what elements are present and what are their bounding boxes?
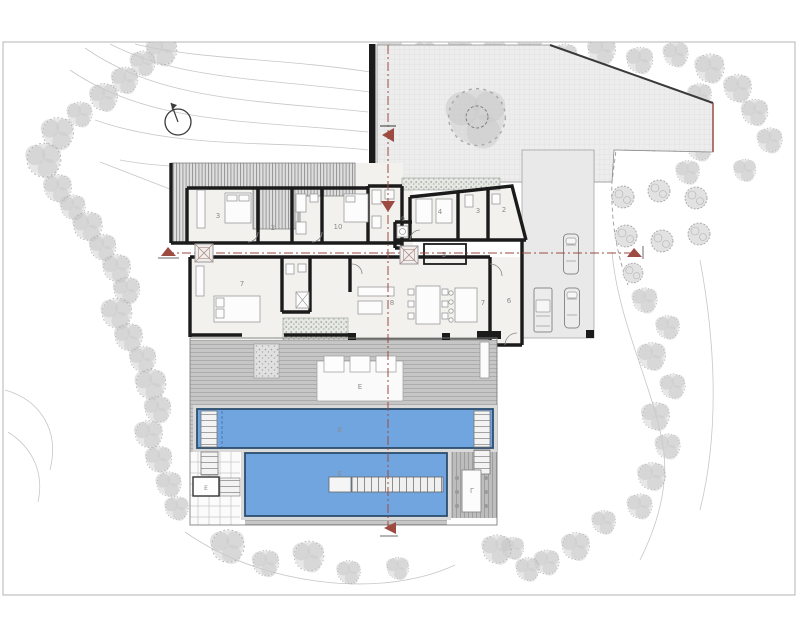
deck-strip [220,478,240,496]
orchard-tree-icon [615,225,637,247]
pool-steps [474,411,490,447]
orchard-tree-icon [612,186,634,208]
bath-fixture [310,194,318,202]
orchard-tree-icon [623,263,643,283]
room-label: 7 [481,299,485,307]
orchard-tree-icon [648,180,670,202]
closet [197,190,205,228]
pool-boardwalk [352,477,443,492]
pool-platform [329,477,351,492]
deck-stairs [201,452,218,475]
closet [196,266,204,296]
bath-fixture [296,222,306,234]
lower-pool [241,449,451,520]
outdoor-label: E [338,470,342,478]
room-label: 6 [507,297,512,305]
room-label: 2 [271,224,275,232]
gravel-planter [254,344,279,378]
bath-fixture [372,216,381,228]
room-label: 3 [216,212,220,220]
grid-rosette [400,246,418,264]
sofa [358,301,382,314]
kitchen-island [455,288,477,322]
washer [397,226,408,237]
bed [416,199,432,223]
bath-fixture [465,195,473,207]
pickup-icon [534,288,552,332]
sofa [358,287,394,296]
room-label: 2 [502,206,506,214]
bath-fixture [296,194,306,212]
bath-fixture [492,194,500,204]
outdoor-label: E [358,383,362,391]
bath-fixture [286,264,294,274]
dining-table [416,286,440,324]
stool [449,291,453,295]
wall-post [442,333,450,340]
outdoor-label: E [204,485,208,492]
car-icon [565,288,580,328]
room-label: 7 [240,280,244,288]
carport-corner-wall [586,330,594,338]
upper-pool [193,405,497,452]
outdoor-label: E [338,426,342,434]
grid-rosette [195,244,213,262]
outdoor-label: Γ [470,487,474,495]
room-label: 5 [442,251,446,259]
bath-fixture [372,190,381,204]
pool-deck [190,338,497,525]
carport-paving [522,150,594,338]
stool [449,300,453,304]
stool [449,309,453,313]
lounge-platform [317,356,403,401]
bath-fixture [385,190,394,199]
room-label: 8 [390,299,394,307]
car-icon [564,234,579,274]
shower [296,292,309,308]
room-label: 3 [476,207,480,215]
pool-steps [201,411,217,447]
carport [522,150,594,338]
bath-fixture [298,264,306,272]
orchard-tree-icon [685,187,707,209]
room-label: 4 [438,208,443,216]
sun-lounger [480,342,489,378]
site-plan: 3 2 10 4 3 2 9 5 7 8 7 6 E E E Γ E [0,0,800,640]
courtyard-wall [369,44,376,182]
wall-post [348,333,356,340]
orchard-tree-icon [651,230,673,252]
room-label: 9 [401,216,405,223]
orchard-tree-icon [688,223,710,245]
plan-page: 3 2 10 4 3 2 9 5 7 8 7 6 E E E Γ E [0,0,800,640]
stool [449,318,453,322]
room-label: 10 [334,223,343,231]
